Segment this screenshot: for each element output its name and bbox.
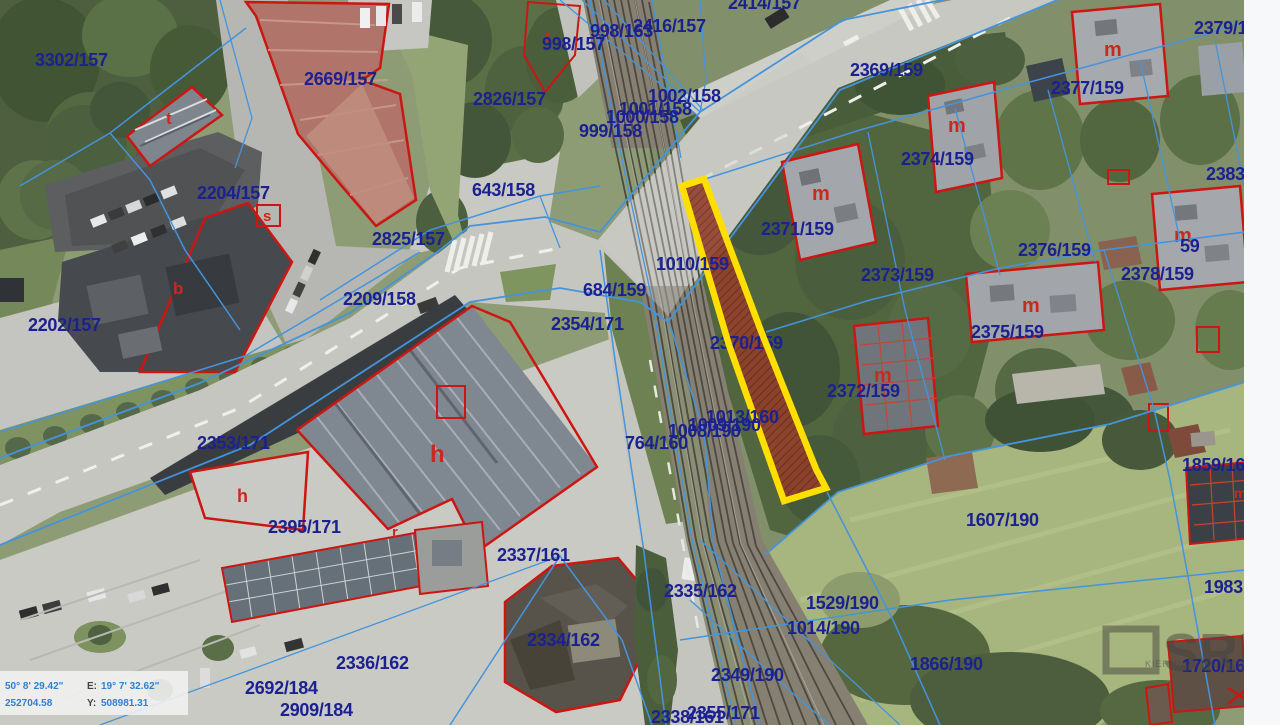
svg-text:s: s [263, 208, 271, 225]
svg-text:m: m [812, 183, 830, 205]
svg-text:2335/162: 2335/162 [664, 581, 737, 601]
svg-text:643/158: 643/158 [472, 180, 535, 200]
svg-text:2369/159: 2369/159 [850, 60, 923, 80]
svg-text:Y:: Y: [87, 698, 96, 709]
svg-text:2204/157: 2204/157 [197, 183, 270, 203]
svg-text:2353/171: 2353/171 [197, 433, 270, 453]
svg-text:2395/171: 2395/171 [268, 517, 341, 537]
svg-text:t: t [166, 109, 172, 128]
svg-text:684/159: 684/159 [583, 280, 646, 300]
svg-text:2372/159: 2372/159 [827, 381, 900, 401]
svg-text:1010/159: 1010/159 [656, 254, 729, 274]
svg-text:2414/157: 2414/157 [728, 0, 801, 13]
svg-text:252704.58: 252704.58 [5, 698, 53, 709]
svg-text:50° 8' 29.42": 50° 8' 29.42" [5, 681, 64, 692]
svg-text:2383: 2383 [1206, 164, 1245, 184]
svg-text:2334/162: 2334/162 [527, 630, 600, 650]
svg-text:2209/158: 2209/158 [343, 289, 416, 309]
svg-text:1014/190: 1014/190 [787, 618, 860, 638]
svg-text:2371/159: 2371/159 [761, 219, 834, 239]
svg-text:3302/157: 3302/157 [35, 50, 108, 70]
svg-text:2376/159: 2376/159 [1018, 240, 1091, 260]
svg-text:508981.31: 508981.31 [101, 698, 149, 709]
svg-text:2375/159: 2375/159 [971, 322, 1044, 342]
svg-text:1607/190: 1607/190 [966, 510, 1039, 530]
svg-text:h: h [430, 441, 445, 468]
svg-text:999/158: 999/158 [579, 121, 642, 141]
svg-text:E:: E: [87, 681, 97, 692]
svg-text:2826/157: 2826/157 [473, 89, 546, 109]
svg-text:2354/171: 2354/171 [551, 314, 624, 334]
svg-text:1859/16: 1859/16 [1182, 455, 1245, 475]
svg-text:2202/157: 2202/157 [28, 315, 101, 335]
svg-text:764/160: 764/160 [625, 433, 688, 453]
svg-text:r: r [392, 524, 398, 541]
svg-text:m: m [948, 115, 966, 137]
svg-text:2374/159: 2374/159 [901, 149, 974, 169]
svg-text:2373/159: 2373/159 [861, 265, 934, 285]
svg-text:2378/159: 2378/159 [1121, 264, 1194, 284]
svg-text:2377/159: 2377/159 [1051, 78, 1124, 98]
svg-text:2416/157: 2416/157 [633, 16, 706, 36]
svg-text:2909/184: 2909/184 [280, 700, 353, 720]
svg-text:2669/157: 2669/157 [304, 69, 377, 89]
svg-text:2349/190: 2349/190 [711, 665, 784, 685]
svg-text:h: h [237, 486, 248, 506]
svg-text:1529/190: 1529/190 [806, 593, 879, 613]
svg-text:59: 59 [1180, 236, 1200, 256]
svg-text:2825/157: 2825/157 [372, 229, 445, 249]
svg-text:m: m [1022, 295, 1040, 317]
svg-text:1866/190: 1866/190 [910, 654, 983, 674]
svg-text:2338/161: 2338/161 [651, 707, 724, 725]
svg-text:1983: 1983 [1204, 577, 1243, 597]
svg-text:b: b [173, 279, 183, 298]
svg-text:2692/184: 2692/184 [245, 678, 318, 698]
svg-text:19° 7' 32.62": 19° 7' 32.62" [101, 681, 160, 692]
svg-text:2337/161: 2337/161 [497, 545, 570, 565]
svg-text:2336/162: 2336/162 [336, 653, 409, 673]
